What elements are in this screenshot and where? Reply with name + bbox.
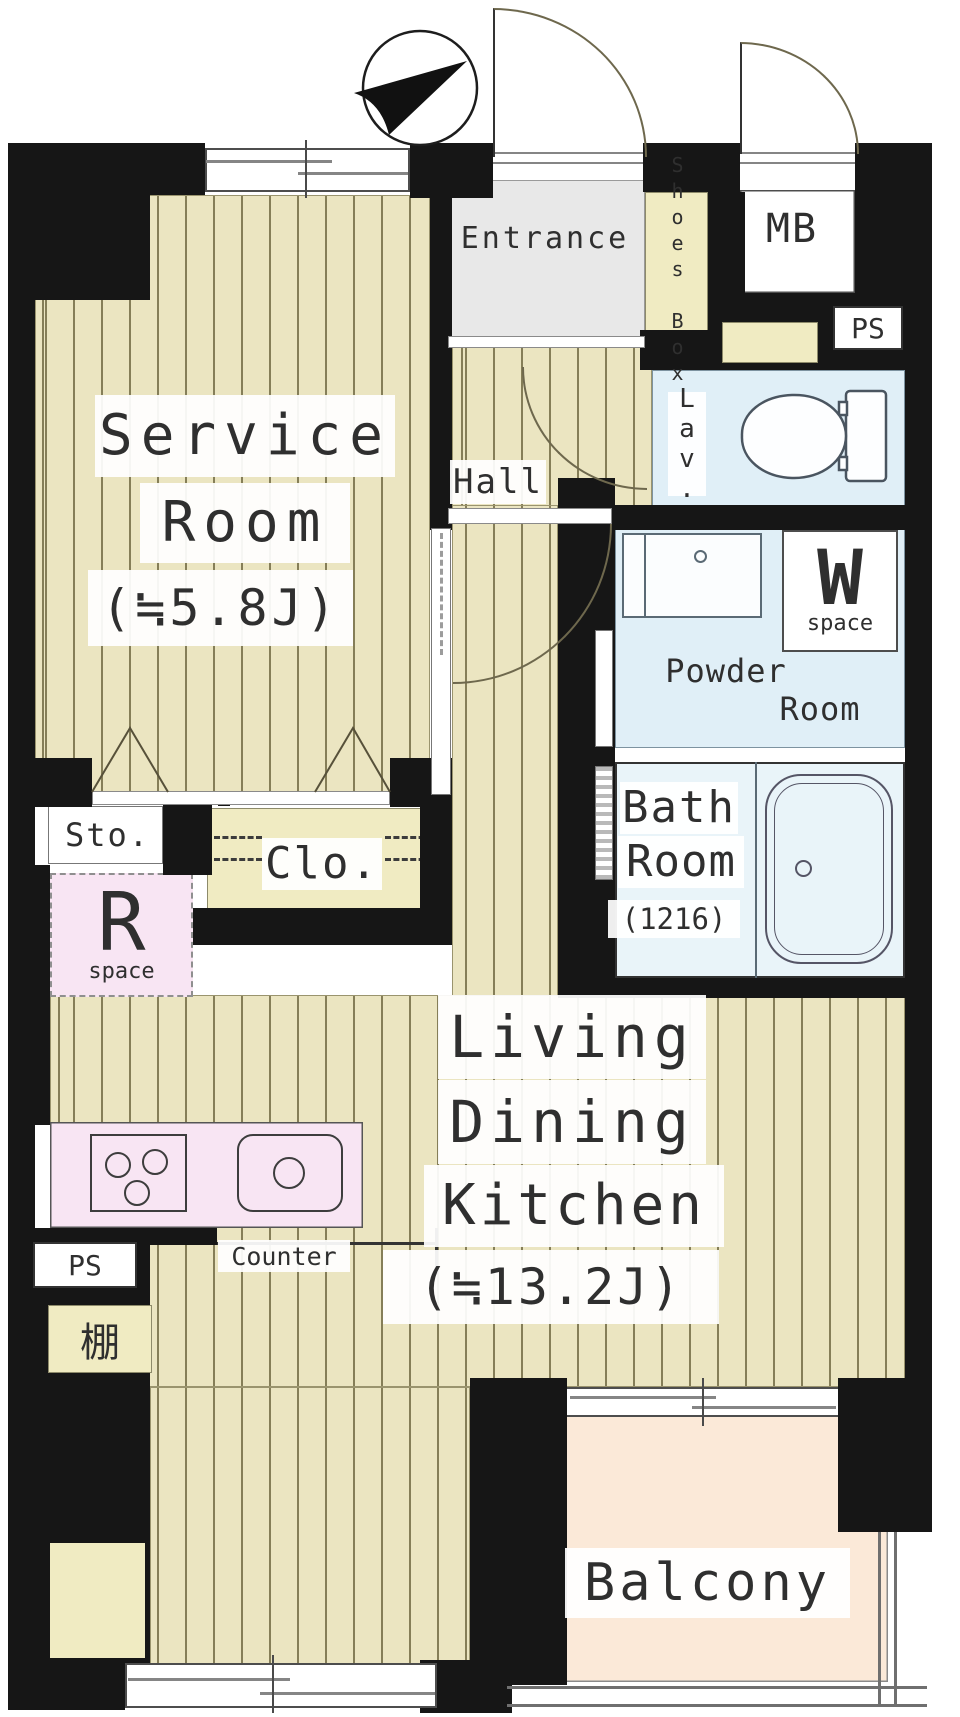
balcony-railing-side <box>878 1532 881 1704</box>
wall-segment <box>35 195 150 300</box>
shoes-box-label: Shoes Box <box>650 197 705 342</box>
wall-segment <box>8 143 205 195</box>
storage-label: Sto. <box>60 814 155 856</box>
bath-room-door <box>595 766 613 880</box>
closet-dash <box>214 858 262 861</box>
burner-icon <box>142 1149 168 1175</box>
wall-segment <box>193 908 452 945</box>
burner-icon <box>124 1180 150 1206</box>
ldk-label-3: Kitchen <box>424 1165 724 1247</box>
pipe-space-left-label: PS <box>68 1249 102 1282</box>
wall-segment <box>905 332 932 1378</box>
balcony-railing <box>507 1704 927 1707</box>
sink-basin-icon <box>273 1157 305 1189</box>
balcony-label: Balcony <box>565 1548 850 1618</box>
wall-segment <box>35 1665 125 1710</box>
bath-room-label-1: Bath <box>620 782 738 834</box>
faucet-icon <box>694 550 707 563</box>
closet-front-sill <box>92 791 390 805</box>
north-arrow-icon <box>354 31 477 145</box>
powder-room-label-2: Room <box>760 691 880 727</box>
shelf-label: 棚 <box>80 1310 120 1368</box>
washer-space-box: W space <box>782 530 898 652</box>
window-bottom-glass-line <box>260 1692 435 1695</box>
washbasin-icon <box>622 533 762 618</box>
sliding-door-track <box>440 533 443 655</box>
entrance-threshold-line <box>493 162 643 164</box>
shelf-box: 棚 <box>48 1305 152 1373</box>
bath-room-size-label: (1216) <box>608 900 740 938</box>
mb-threshold-line <box>740 162 855 164</box>
meter-box-label: MB <box>757 206 827 252</box>
bath-faucet-icon <box>795 860 812 877</box>
window-top-glass-line <box>206 160 332 163</box>
wall-segment <box>615 505 905 530</box>
balcony-window-tick <box>702 1378 704 1426</box>
lavatory-shelf-box <box>722 322 818 363</box>
refrigerator-space-sub: space <box>88 959 154 984</box>
washbasin-divider <box>644 535 646 616</box>
hall-label: Hall <box>450 460 546 504</box>
washer-space-letter: W <box>817 546 863 611</box>
window-top-glass-line <box>298 172 408 175</box>
closet-label: Clo. <box>262 838 382 890</box>
pipe-space-top-label: PS <box>851 312 885 345</box>
refrigerator-space: R space <box>50 873 193 997</box>
hall-ldk-sill <box>448 508 612 524</box>
washer-space-sub: space <box>807 611 873 636</box>
counter-label: Counter <box>218 1240 350 1272</box>
pipe-space-left-box: PS <box>33 1242 137 1288</box>
bathtub-icon <box>765 774 893 964</box>
powder-room-label-1: Powder <box>655 653 797 689</box>
window-top-tick <box>305 140 307 198</box>
balcony-railing-side <box>894 1532 897 1704</box>
refrigerator-space-letter: R <box>97 887 145 959</box>
pipe-space-top-box: PS <box>833 306 903 350</box>
lavatory-label: Lav. <box>668 392 706 496</box>
wall-segment <box>420 793 452 908</box>
balcony-window-glass-line <box>570 1396 716 1399</box>
powder-room-door <box>595 630 613 747</box>
window-bottom-glass-line <box>128 1678 290 1681</box>
service-room-label-1: Service <box>95 395 395 477</box>
powder-bath-gap <box>615 748 905 762</box>
mb-door-arc <box>740 42 859 154</box>
ldk-label-1: Living <box>438 995 706 1079</box>
wall-segment <box>838 1378 932 1532</box>
service-room-label-2: Room <box>140 483 350 563</box>
entrance-step-sill <box>448 336 645 348</box>
window-top <box>205 148 410 192</box>
service-room-area-label: (≒5.8J) <box>88 570 353 646</box>
burner-icon <box>105 1152 131 1178</box>
ldk-label-2: Dining <box>438 1080 706 1164</box>
service-room-sliding-door <box>431 528 451 795</box>
niche-box <box>50 1543 145 1658</box>
floor-ldk-lower <box>150 1387 470 1665</box>
floor-plan: R space <box>0 0 960 1717</box>
window-bottom-left <box>125 1663 437 1708</box>
bath-room-label-2: Room <box>618 836 744 888</box>
window-bottom-tick <box>272 1655 274 1713</box>
wall-segment <box>163 800 212 875</box>
entrance-door-arc <box>493 8 647 157</box>
wall-segment <box>855 143 932 332</box>
wall-segment <box>8 165 35 1710</box>
balcony-window-glass-line <box>692 1406 836 1409</box>
bathtub-inner <box>774 783 884 955</box>
ldk-area-label: (≒13.2J) <box>383 1250 719 1324</box>
entrance-label: Entrance <box>455 215 635 263</box>
balcony-railing <box>507 1686 927 1689</box>
wall-segment <box>470 1378 567 1685</box>
bath-divider-line <box>755 762 757 978</box>
wall-segment <box>35 865 50 1125</box>
wall-segment <box>643 143 740 192</box>
wall-segment <box>35 758 92 807</box>
closet-dash <box>214 836 262 839</box>
